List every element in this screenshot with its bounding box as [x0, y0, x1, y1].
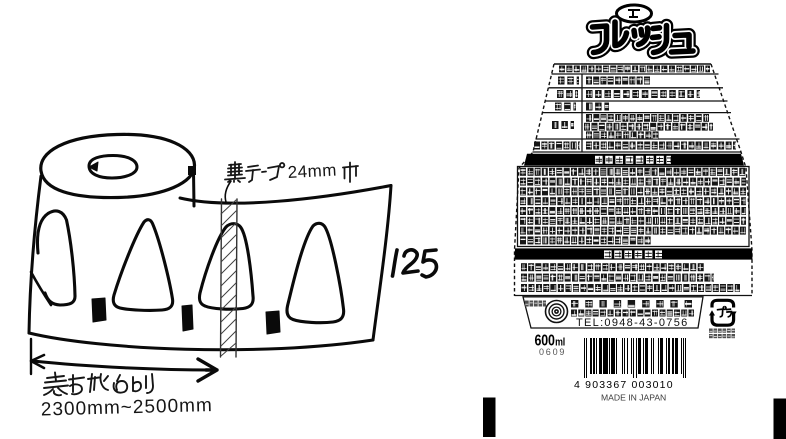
svg-text:0609: 0609: [539, 347, 566, 357]
svg-text:TEL:0948-43-0756: TEL:0948-43-0756: [576, 317, 689, 329]
svg-text:MADE IN JAPAN: MADE IN JAPAN: [601, 393, 666, 403]
svg-text:2300mm~2500mm: 2300mm~2500mm: [41, 395, 213, 420]
svg-text:24mm: 24mm: [287, 160, 337, 182]
svg-text:4 903367 003010: 4 903367 003010: [574, 379, 674, 391]
